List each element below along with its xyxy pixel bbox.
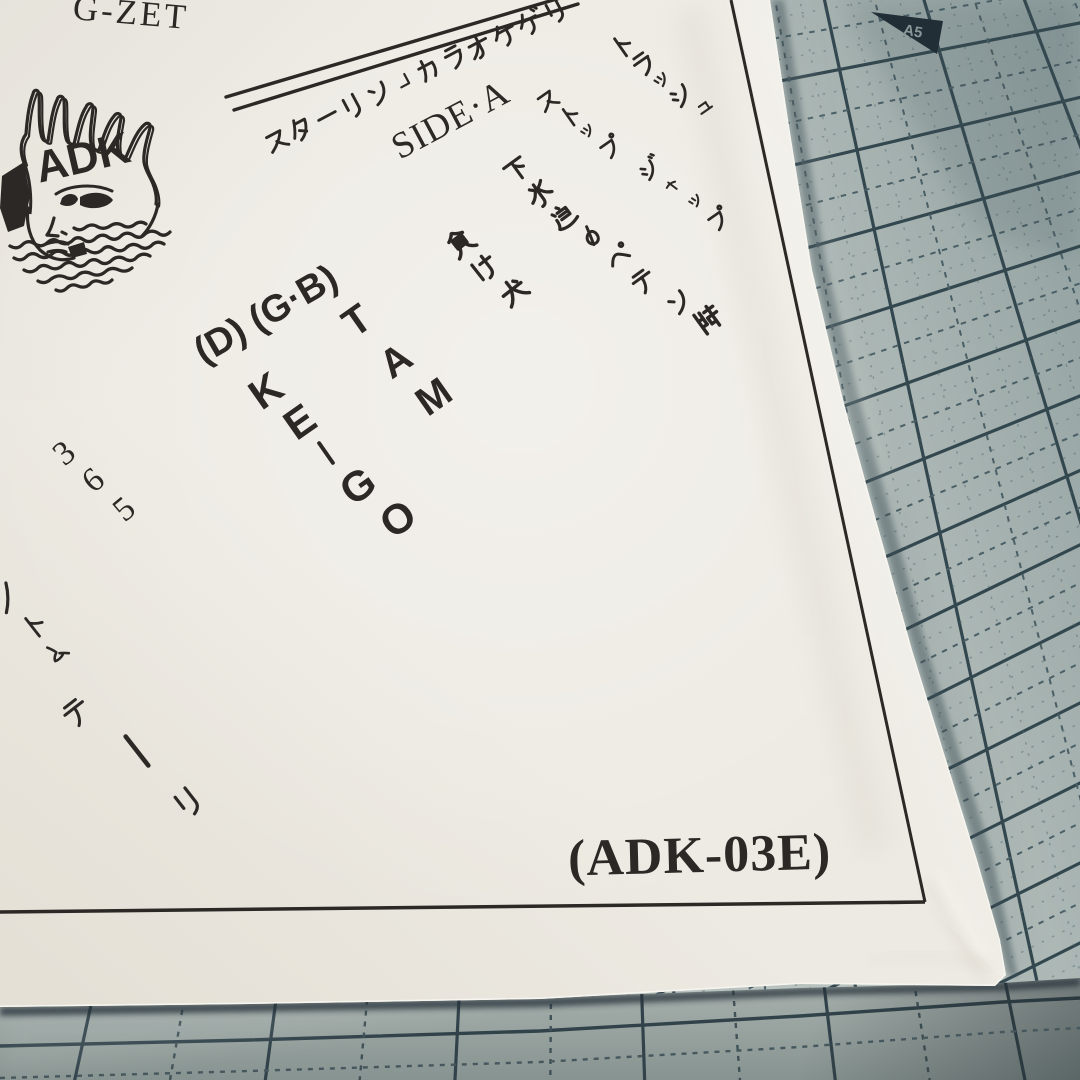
- svg-text:(ADK-03E): (ADK-03E): [567, 824, 832, 888]
- svg-text:A5: A5: [902, 21, 924, 41]
